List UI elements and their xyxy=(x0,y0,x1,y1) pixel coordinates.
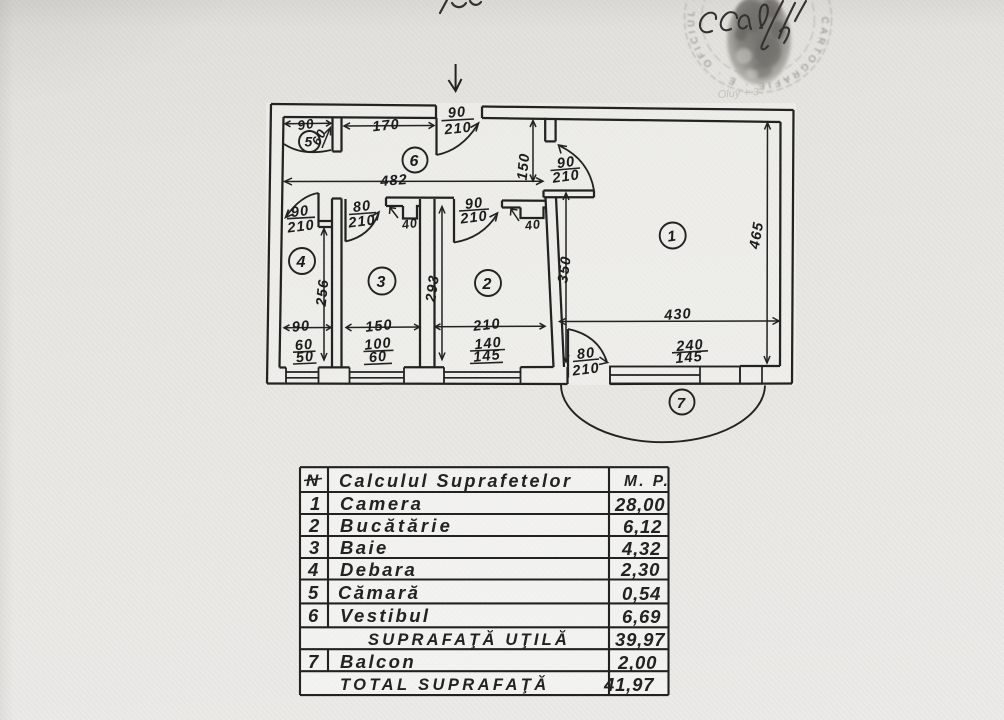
svg-text:6,69: 6,69 xyxy=(622,606,661,627)
svg-text:256: 256 xyxy=(314,278,333,308)
svg-text:40: 40 xyxy=(400,216,419,232)
svg-text:M. P.: M. P. xyxy=(624,473,670,490)
svg-text:28,00: 28,00 xyxy=(614,494,665,515)
svg-text:3: 3 xyxy=(377,274,387,291)
svg-text:2: 2 xyxy=(482,276,493,293)
svg-text:210: 210 xyxy=(472,316,502,335)
svg-text:TOTAL SUPRAFAŢĂ: TOTAL SUPRAFAŢĂ xyxy=(340,675,550,694)
svg-text:150: 150 xyxy=(365,317,394,336)
svg-text:Camera: Camera xyxy=(340,493,423,514)
svg-text:Oluy + 3: Oluy + 3 xyxy=(717,86,760,101)
svg-text:Calculul Suprafetelor: Calculul Suprafetelor xyxy=(339,471,573,491)
svg-text:145: 145 xyxy=(473,347,502,366)
svg-text:41,97: 41,97 xyxy=(603,674,655,695)
svg-text:7: 7 xyxy=(677,395,686,412)
svg-text:4,32: 4,32 xyxy=(621,538,661,559)
svg-text:1: 1 xyxy=(310,493,323,514)
svg-text:145: 145 xyxy=(675,349,704,367)
svg-text:4: 4 xyxy=(296,254,307,271)
svg-text:60: 60 xyxy=(368,349,388,367)
svg-text:Vestibul: Vestibul xyxy=(340,605,430,626)
svg-text:6: 6 xyxy=(308,605,321,626)
svg-text:430: 430 xyxy=(663,306,693,324)
svg-text:0,54: 0,54 xyxy=(622,583,661,604)
svg-text:Baie: Baie xyxy=(340,537,389,558)
svg-text:6,12: 6,12 xyxy=(623,516,662,537)
svg-text:50: 50 xyxy=(295,349,315,367)
svg-text:40: 40 xyxy=(523,217,542,233)
svg-text:6: 6 xyxy=(410,153,420,170)
svg-text:90: 90 xyxy=(447,104,467,122)
svg-text:170: 170 xyxy=(372,117,401,136)
svg-text:2,00: 2,00 xyxy=(617,652,657,673)
svg-text:7: 7 xyxy=(308,651,321,672)
svg-text:2: 2 xyxy=(308,515,322,536)
svg-text:5: 5 xyxy=(308,582,321,603)
svg-text:SUPRAFAŢĂ UŢILĂ: SUPRAFAŢĂ UŢILĂ xyxy=(368,630,570,649)
svg-text:Cămară: Cămară xyxy=(338,582,420,603)
svg-text:482: 482 xyxy=(379,172,409,190)
svg-text:210: 210 xyxy=(443,120,473,139)
svg-text:39,97: 39,97 xyxy=(615,629,666,650)
svg-text:2,30: 2,30 xyxy=(620,559,660,580)
svg-text:Balcon: Balcon xyxy=(340,651,416,672)
svg-text:Debara: Debara xyxy=(340,559,417,580)
svg-text:90: 90 xyxy=(291,318,311,336)
svg-text:Bucătărie: Bucătărie xyxy=(340,515,453,536)
svg-text:150: 150 xyxy=(515,152,534,181)
svg-text:4: 4 xyxy=(307,559,321,580)
svg-text:3: 3 xyxy=(309,537,322,558)
